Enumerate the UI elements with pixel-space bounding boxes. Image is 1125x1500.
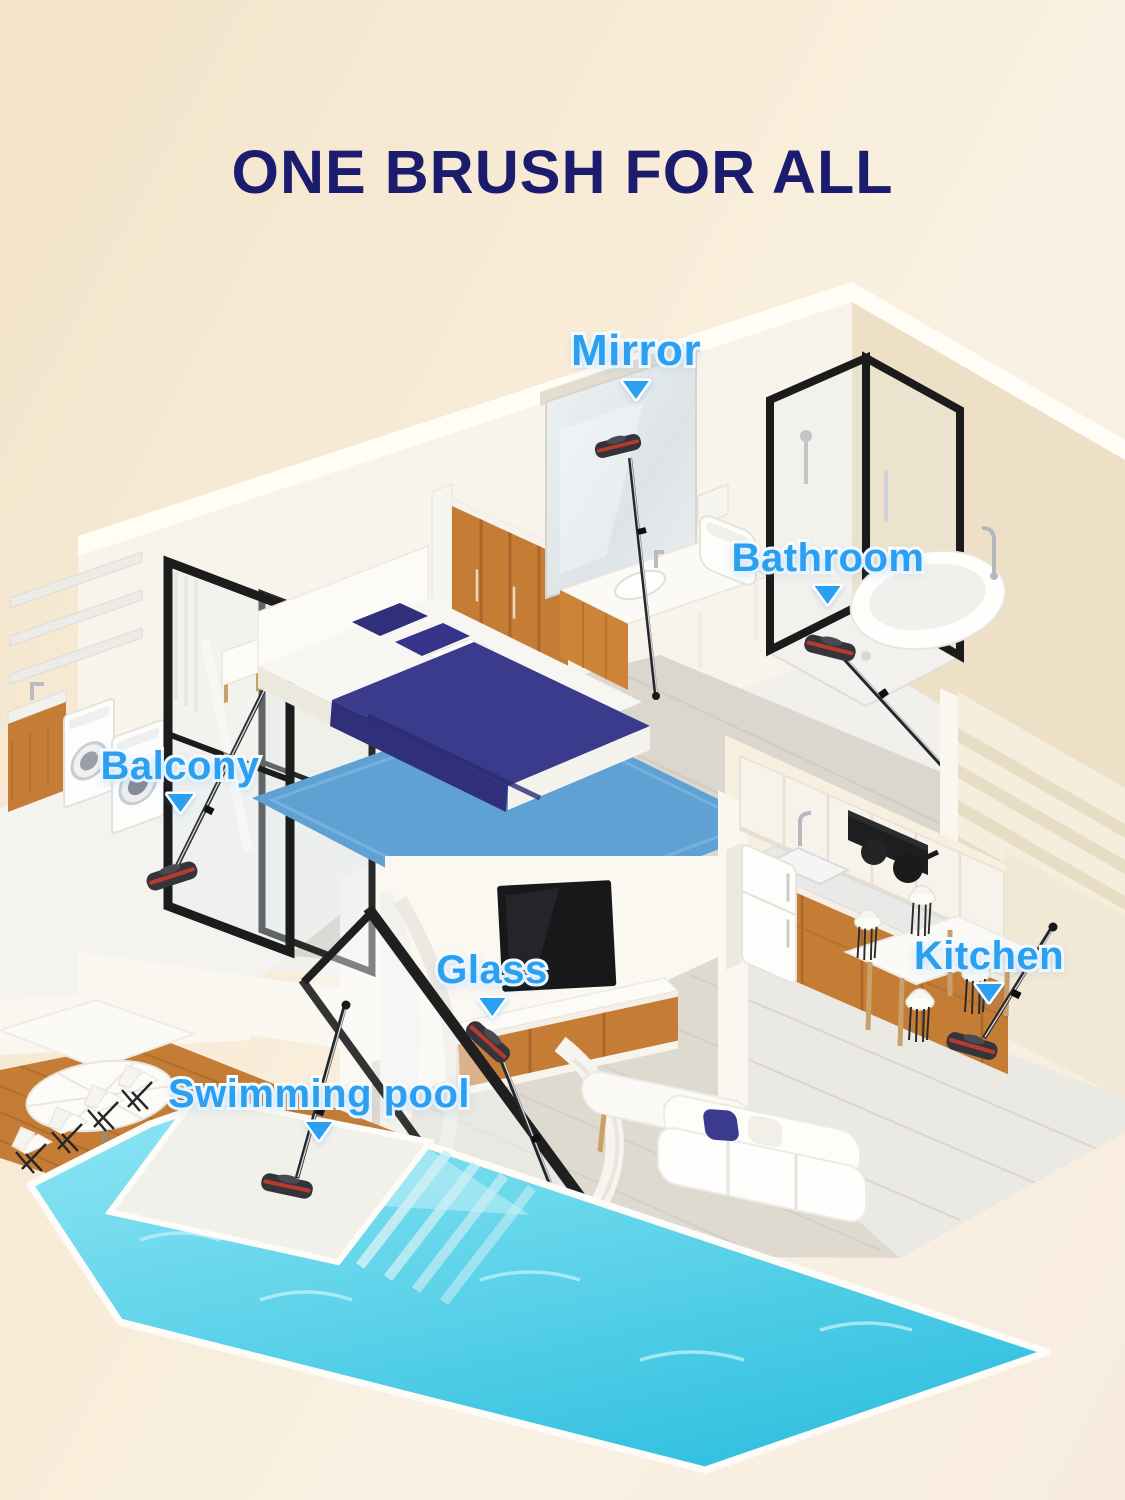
product-infographic: ONE BRUSH FOR ALL — [0, 0, 1125, 1500]
tv — [497, 880, 616, 992]
shower-enclosure — [768, 358, 962, 706]
dryer-machine — [112, 719, 164, 834]
house-cutaway-illustration — [0, 0, 1125, 1500]
fridge — [726, 843, 796, 985]
laundry-sink-cabinet — [8, 684, 66, 812]
washing-machine — [64, 698, 114, 808]
pot-1 — [861, 839, 887, 865]
pot-2 — [893, 853, 923, 883]
